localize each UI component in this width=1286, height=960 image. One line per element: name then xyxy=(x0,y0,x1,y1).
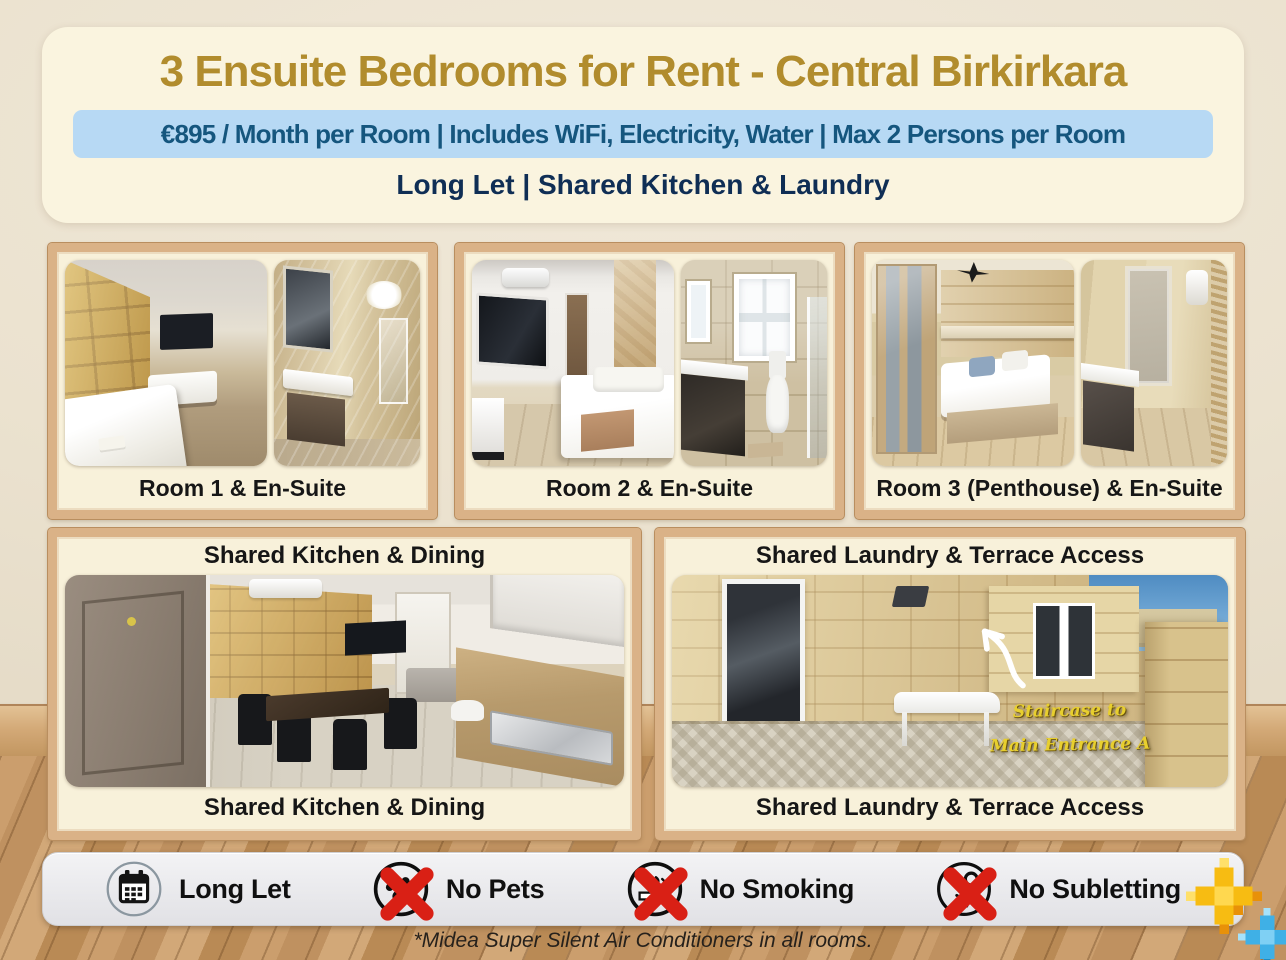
header-card: 3 Ensuite Bedrooms for Rent - Central Bi… xyxy=(42,27,1244,223)
terms-line: Long Let | Shared Kitchen & Laundry xyxy=(42,169,1244,201)
no-subletting-icon xyxy=(935,860,993,918)
white-cabinet xyxy=(472,398,504,460)
amenity-label: Long Let xyxy=(179,874,291,905)
laundry-caption-bottom: Shared Laundry & Terrace Access xyxy=(664,787,1236,829)
laundry-caption-top: Shared Laundry & Terrace Access xyxy=(664,537,1236,575)
kitchen-caption-top: Shared Kitchen & Dining xyxy=(57,537,632,575)
tv-screen xyxy=(345,620,406,655)
blanket xyxy=(581,410,634,453)
ceiling-light xyxy=(365,281,403,310)
room1-caption: Room 1 & En-Suite xyxy=(57,466,428,510)
footnote: *Midea Super Silent Air Conditioners in … xyxy=(0,929,1286,953)
amenity-no-smoking: No Smoking xyxy=(626,860,855,918)
bathroom-window xyxy=(734,274,795,361)
stone-wall xyxy=(1211,260,1227,466)
tv-screen xyxy=(476,292,549,369)
bathroom-mirror xyxy=(283,266,333,354)
entrance-door xyxy=(65,575,210,787)
amenities-bar: Long Let No Pets xyxy=(42,852,1244,926)
shower-glass xyxy=(379,318,408,405)
staircase-note-line2: Main Entrance A xyxy=(978,726,1162,763)
air-conditioner xyxy=(249,579,322,598)
pillow xyxy=(969,355,995,376)
staircase-note-line1: Staircase to xyxy=(977,692,1161,729)
arrow-icon xyxy=(956,617,1039,689)
photo-room2-bathroom xyxy=(681,260,827,466)
panel-room3: Room 3 (Penthouse) & En-Suite xyxy=(855,243,1244,519)
room3-caption: Room 3 (Penthouse) & En-Suite xyxy=(864,466,1235,510)
room2-caption: Room 2 & En-Suite xyxy=(464,466,835,510)
photo-room2-bedroom xyxy=(472,260,674,466)
floodlight xyxy=(892,586,930,607)
bathroom-floor xyxy=(274,439,420,466)
shower-enclosure xyxy=(1125,266,1172,385)
no-smoking-icon xyxy=(626,860,684,918)
small-window xyxy=(687,281,710,343)
amenity-label: No Subletting xyxy=(1009,874,1181,905)
pillows xyxy=(593,367,664,392)
air-conditioner xyxy=(502,268,549,287)
sink-counter xyxy=(283,369,353,396)
wall-ledge xyxy=(941,326,1075,338)
photo-room3-bathroom xyxy=(1081,260,1227,466)
photo-shared-kitchen xyxy=(65,575,624,787)
water-heater xyxy=(1186,270,1208,305)
amenity-no-subletting: No Subletting xyxy=(935,860,1181,918)
sink-cabinet xyxy=(287,392,345,447)
room1-photos xyxy=(57,252,428,466)
panel-room1: Room 1 & En-Suite xyxy=(48,243,437,519)
amenity-no-pets: No Pets xyxy=(372,860,544,918)
pillow xyxy=(1002,349,1028,370)
price-banner: €895 / Month per Room | Includes WiFi, E… xyxy=(73,110,1213,158)
red-x-icon xyxy=(378,865,436,923)
photo-terrace: Staircase to Main Entrance A xyxy=(672,575,1228,787)
amenity-long-let: Long Let xyxy=(105,860,291,918)
amenity-label: No Smoking xyxy=(700,874,855,905)
sparkle-blue-icon xyxy=(1238,908,1286,960)
photo-room1-bedroom xyxy=(65,260,267,466)
floor-mat xyxy=(748,442,783,459)
upper-cabinets xyxy=(490,575,624,647)
photo-room1-bathroom xyxy=(274,260,420,466)
photo-room3-bedroom xyxy=(872,260,1074,466)
double-bed xyxy=(65,384,188,466)
limestone-wall xyxy=(941,270,1075,357)
sink-cabinet xyxy=(1083,380,1134,451)
calendar-icon xyxy=(105,860,163,918)
room3-photos xyxy=(864,252,1235,466)
panel-room2: Room 2 & En-Suite xyxy=(455,243,844,519)
bedroom-door xyxy=(565,293,589,384)
no-pets-icon xyxy=(372,860,430,918)
shower-glass xyxy=(807,297,827,458)
page-title: 3 Ensuite Bedrooms for Rent - Central Bi… xyxy=(42,47,1244,97)
tv-screen xyxy=(160,313,213,350)
mirrored-wardrobe xyxy=(876,264,937,454)
panel-laundry: Shared Laundry & Terrace Access Staircas… xyxy=(655,528,1245,840)
panel-kitchen: Shared Kitchen & Dining Shared Kitchen &… xyxy=(48,528,641,840)
red-x-icon xyxy=(941,865,999,923)
room2-photos xyxy=(464,252,835,466)
kitchen-caption-bottom: Shared Kitchen & Dining xyxy=(57,787,632,829)
amenity-label: No Pets xyxy=(446,874,544,905)
dining-chair xyxy=(333,719,367,770)
toilet xyxy=(766,375,789,433)
rental-flyer: 3 Ensuite Bedrooms for Rent - Central Bi… xyxy=(0,0,1286,960)
kettle xyxy=(451,700,485,721)
staircase-note: Staircase to Main Entrance A xyxy=(977,692,1162,763)
red-x-icon xyxy=(632,865,690,923)
double-door xyxy=(1033,603,1094,679)
stone-accent-wall xyxy=(614,260,656,384)
vanity-cabinet xyxy=(681,374,745,457)
